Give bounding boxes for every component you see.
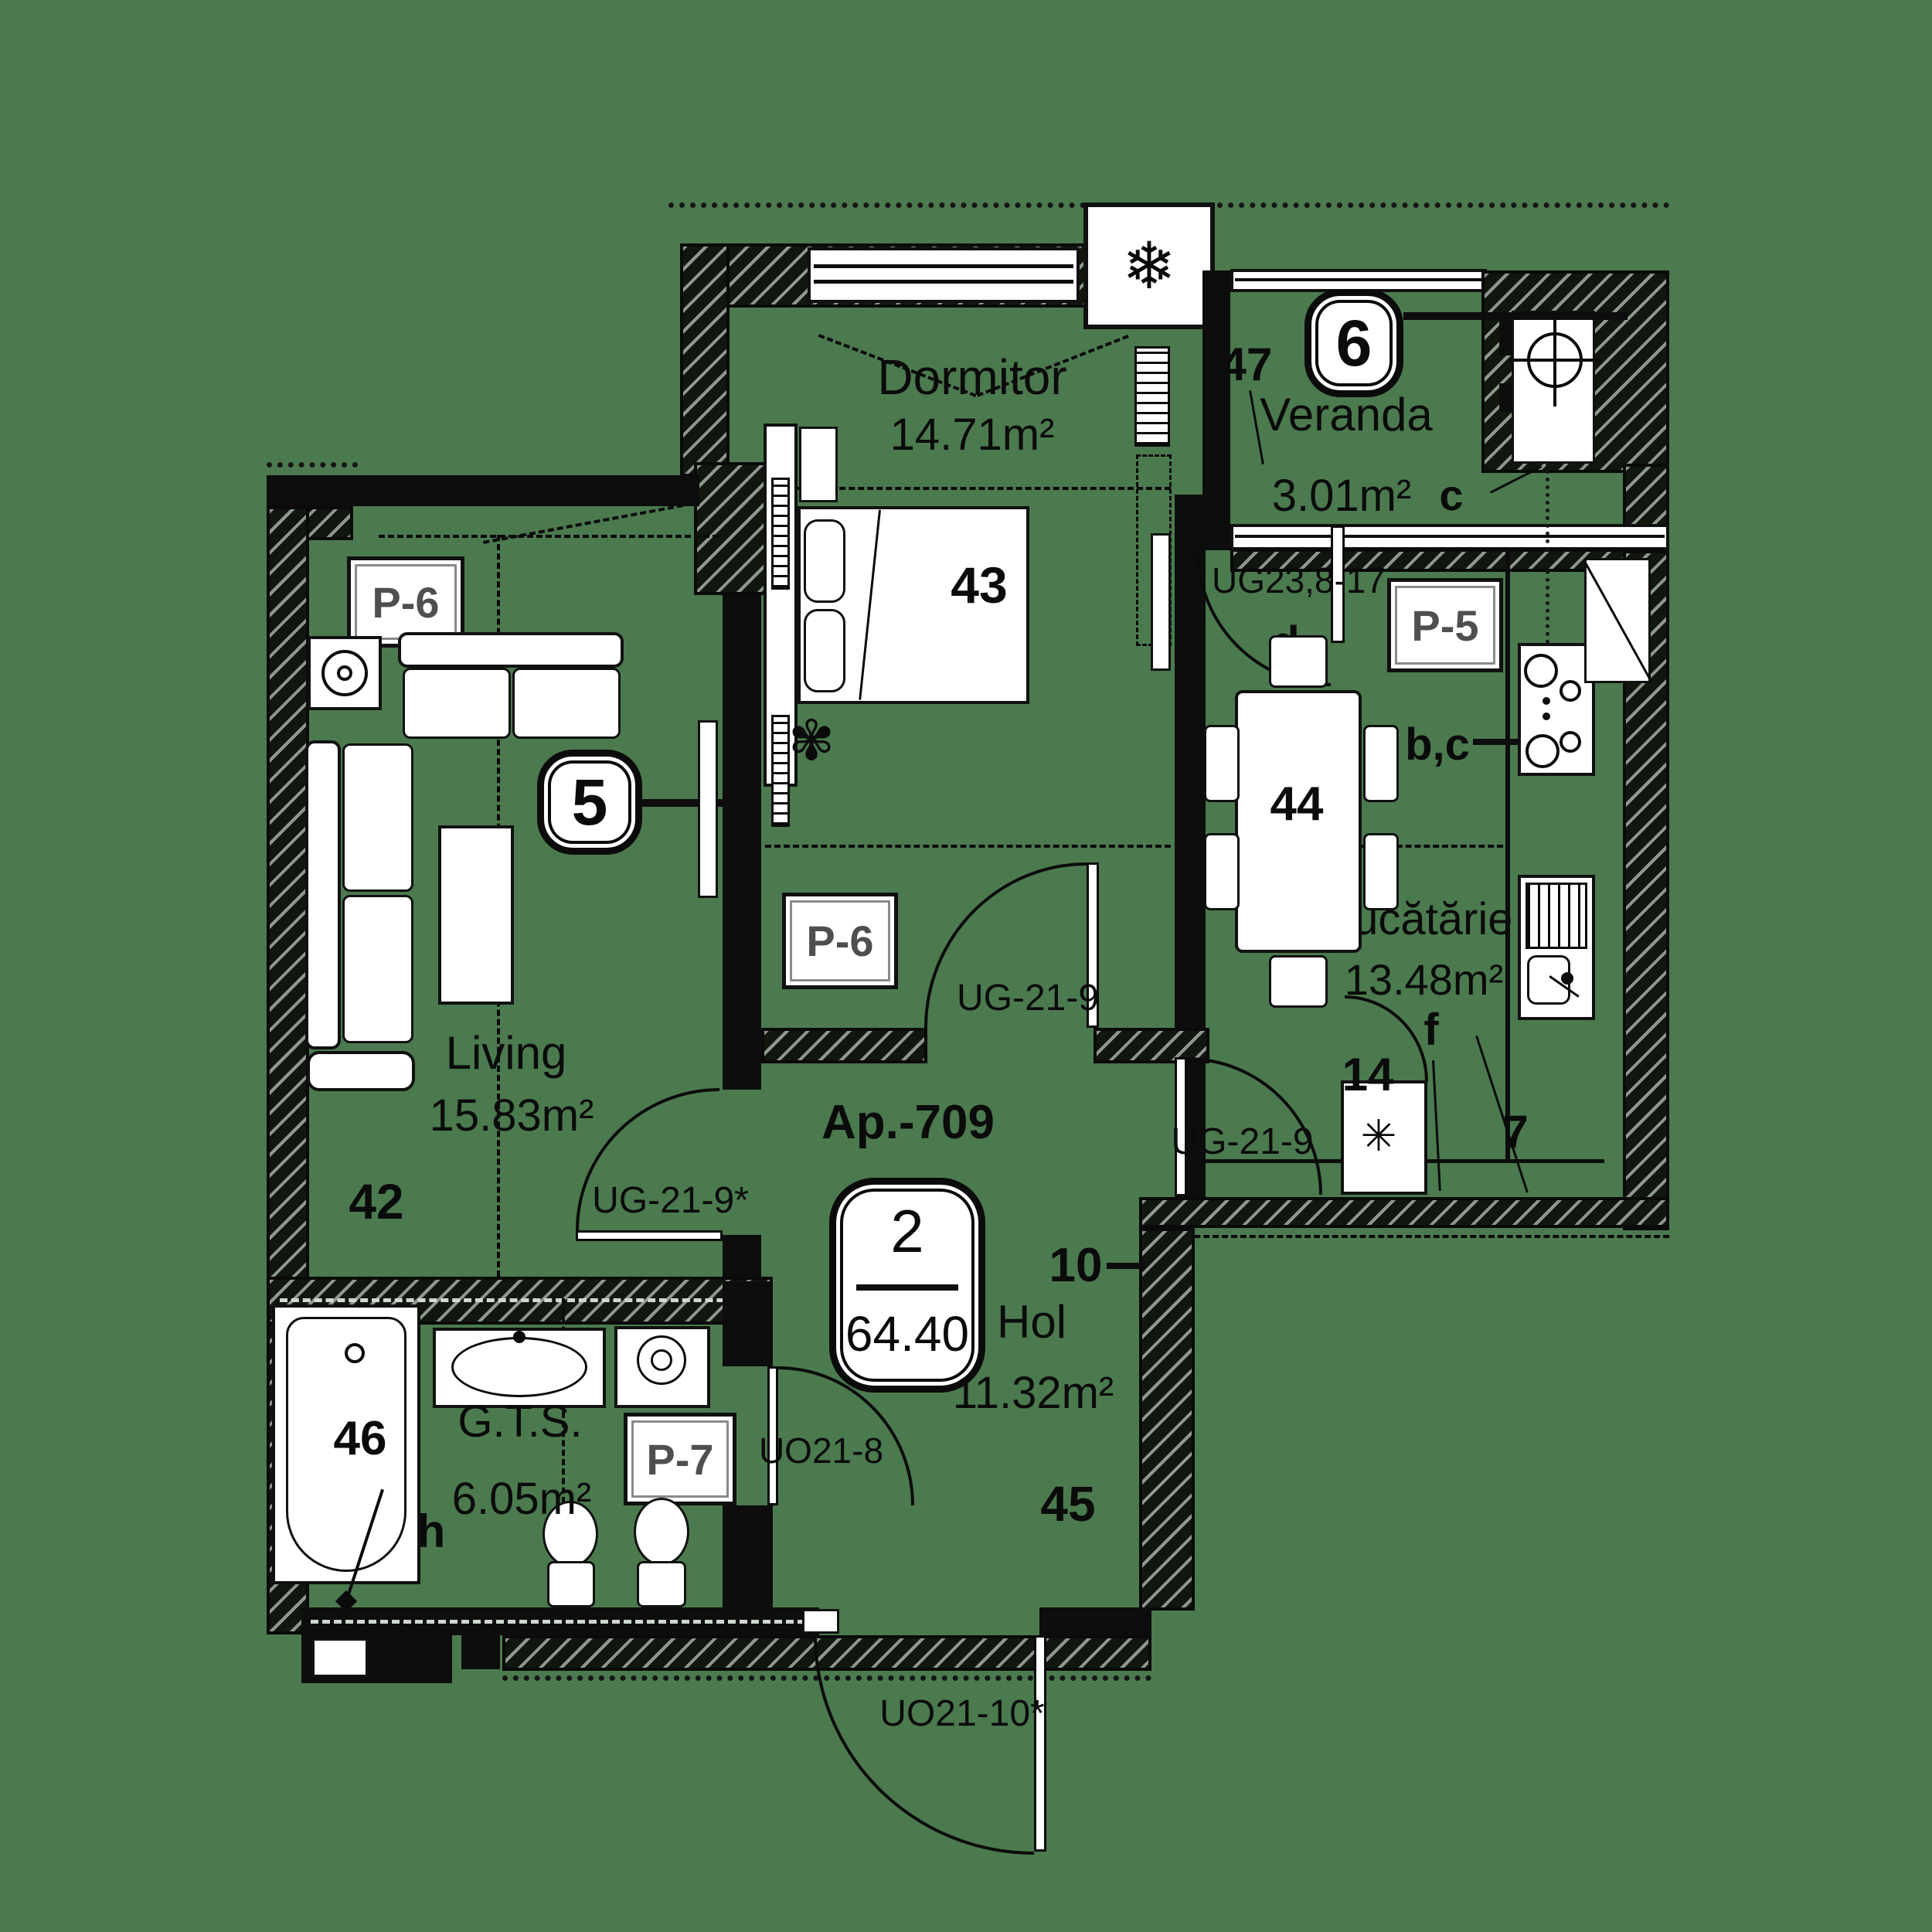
room-name-hol: Hol xyxy=(958,1295,1105,1348)
stove-knob-1 xyxy=(1543,697,1550,705)
washing-machine-inner xyxy=(651,1349,672,1371)
chair-top xyxy=(1269,635,1328,688)
axis-living-h xyxy=(379,535,719,538)
letter-bc: b,c xyxy=(1400,719,1475,770)
insulation-dots-top-left xyxy=(668,202,1086,208)
coffee-table xyxy=(438,825,514,1005)
room-name-living: Living xyxy=(417,1028,595,1077)
entry-threshold xyxy=(802,1609,839,1634)
room-area-gts: 6.05m² xyxy=(433,1473,611,1524)
room-area-bucatarie: 13.48m² xyxy=(1314,955,1534,1003)
bathroom-sink-basin xyxy=(451,1337,587,1397)
bed-shelf xyxy=(799,427,838,502)
side-table-circle-inner xyxy=(337,665,352,681)
axis-dormitor-h2 xyxy=(765,845,1171,848)
sofa-back-left xyxy=(305,740,341,1049)
room-name-gts: G.T.S. xyxy=(433,1396,607,1447)
room-name-veranda: Veranda xyxy=(1252,390,1440,438)
stove-burner-small-1 xyxy=(1560,680,1581,702)
kitchen-counter-edge xyxy=(1505,550,1510,1161)
position-no-45: 45 xyxy=(1028,1476,1108,1532)
window-veranda-top-line xyxy=(1235,278,1482,281)
chair-right-1 xyxy=(1363,725,1399,802)
sofa-cushion-top-2 xyxy=(512,668,621,739)
room-area-living: 15.83m² xyxy=(410,1091,614,1139)
door-label-kitchen: UG-21-9 xyxy=(1159,1122,1325,1161)
apartment-label: Ap.-709 xyxy=(804,1093,1012,1151)
window-dormitor xyxy=(808,247,1080,303)
room-area-dormitor: 14.71m² xyxy=(835,410,1110,459)
bed-pillow-1 xyxy=(804,519,845,603)
position-no-42: 42 xyxy=(334,1175,419,1229)
sink-faucet xyxy=(1561,972,1573,985)
toilet-bowl xyxy=(634,1498,689,1566)
chair-right-2 xyxy=(1363,833,1399,910)
wall-gts-hol-upper xyxy=(723,1281,773,1366)
chair-left-1 xyxy=(1204,725,1240,802)
sofa-armrest xyxy=(307,1051,415,1091)
bottom-small-block xyxy=(461,1635,500,1669)
plant-flower-icon: ✾ xyxy=(784,713,839,768)
door-leaf-entrance xyxy=(1034,1635,1046,1852)
door-label-living: UG-21-9* xyxy=(587,1181,753,1219)
insulation-dots-living xyxy=(267,462,358,468)
wall-corner-block xyxy=(694,462,773,595)
wall-dormitor-bottom-left xyxy=(761,1028,927,1063)
sofa-cushion-left-1 xyxy=(342,743,413,892)
wall-living-hol-lower xyxy=(723,1235,761,1281)
panel-p7: P-7 xyxy=(624,1413,736,1505)
shaft-tab2 xyxy=(1499,383,1512,411)
insulation-dots-top-right xyxy=(1217,202,1669,208)
window-veranda-kitchen-line xyxy=(1235,535,1665,538)
apartment-badge-divider xyxy=(856,1284,958,1291)
letter-c: c xyxy=(1436,471,1467,518)
snowflake-icon: ❄ xyxy=(1122,228,1176,304)
position-no-47: 47 xyxy=(1221,337,1272,391)
door-label-gts: UO21-8 xyxy=(746,1431,896,1470)
wall-living-top xyxy=(267,475,699,506)
leader-bc xyxy=(1473,739,1519,745)
wall-bottom-right xyxy=(1039,1607,1151,1635)
section-badge-5: 5 xyxy=(537,750,642,855)
bed-headboard-stripes1 xyxy=(771,478,790,590)
toilet-base xyxy=(637,1561,686,1607)
wall-gts-hol-lower xyxy=(723,1505,773,1611)
radiator-dormitor xyxy=(1134,346,1170,447)
stove-burner-large-2 xyxy=(1526,734,1560,768)
sofa-back-top xyxy=(398,632,624,668)
apartment-rooms-count: 2 xyxy=(837,1196,978,1266)
door-leaf-living xyxy=(576,1230,723,1241)
sofa-cushion-top-1 xyxy=(403,668,511,739)
window-dormitor-line1 xyxy=(814,264,1073,268)
chair-bottom xyxy=(1269,955,1328,1008)
fridge-no-14: 14 xyxy=(1333,1051,1403,1097)
bathroom-sink-faucet xyxy=(513,1331,526,1343)
stove-knob-2 xyxy=(1543,713,1550,720)
bathtub-drain xyxy=(345,1343,365,1363)
stove-burner-small-2 xyxy=(1560,731,1581,753)
table-no-44: 44 xyxy=(1258,777,1335,830)
panel-p5: P-5 xyxy=(1387,578,1503,672)
wall-kitchen-bottom-dash xyxy=(1139,1235,1669,1238)
wall-dormitor-left xyxy=(680,243,730,477)
wall-divider-junction xyxy=(1175,495,1230,550)
section-badge-6: 6 xyxy=(1304,289,1403,397)
sink-drainer xyxy=(1526,883,1587,949)
letter-f: f xyxy=(1413,1005,1450,1054)
ac-unit-box: ❄ xyxy=(1083,202,1215,329)
shaft-vent-cross-v xyxy=(1553,314,1556,406)
position-no-10: 10 xyxy=(1045,1238,1107,1292)
chair-left-2 xyxy=(1204,833,1240,910)
wall-gts-top-dash xyxy=(280,1298,759,1302)
wall-bottom-dash xyxy=(311,1620,805,1624)
leader-f xyxy=(1432,1060,1441,1191)
veranda-door-window-label: UG23,8-17 xyxy=(1181,561,1417,600)
tub-no-46: 46 xyxy=(325,1411,396,1465)
furniture-no-43: 43 xyxy=(937,558,1022,612)
stove-burner-large-1 xyxy=(1524,654,1558,688)
sofa-cushion-left-2 xyxy=(342,895,413,1043)
wall-living-hol-upper xyxy=(723,595,761,1090)
window-dormitor-line2 xyxy=(814,280,1073,284)
flue-dotted-line xyxy=(1546,462,1549,651)
section-line-6 xyxy=(1403,312,1628,320)
tv-living xyxy=(698,720,718,898)
wall-hol-right xyxy=(1139,1228,1195,1611)
room-area-hol: 11.32m² xyxy=(937,1368,1130,1417)
bottom-left-fixture xyxy=(312,1638,368,1677)
bed-pillow-2 xyxy=(804,609,845,692)
shaft-tab1 xyxy=(1499,315,1512,355)
door-label-dormitor: UG-21-9 xyxy=(939,978,1117,1017)
floor-plan: ❄ UG-21-9 UG-21-9 UG-21-9* xyxy=(0,0,1932,1932)
door-arc-entrance xyxy=(814,1635,1034,1855)
door-label-entrance: UO21-10* xyxy=(866,1694,1059,1733)
room-area-veranda: 3.01m² xyxy=(1264,470,1419,521)
tv-dormitor xyxy=(1151,533,1171,671)
fridge-asterisk-icon: ✳ xyxy=(1355,1113,1402,1159)
leader-10 xyxy=(1107,1263,1145,1269)
wall-kitchen-bottom xyxy=(1139,1197,1669,1228)
panel-p6-dormitor: P-6 xyxy=(782,893,898,989)
bidet-base xyxy=(547,1561,595,1607)
room-name-dormitor: Dormitor xyxy=(835,349,1110,405)
